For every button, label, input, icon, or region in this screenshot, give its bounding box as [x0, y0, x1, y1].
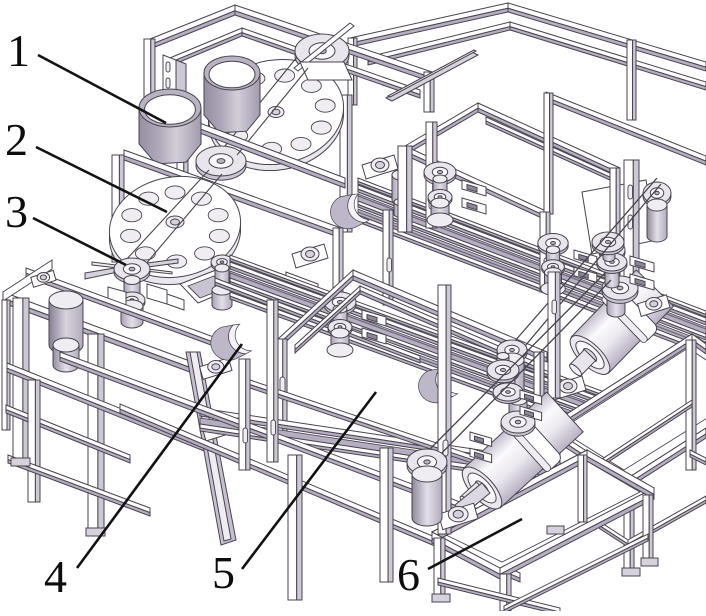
svg-text:1: 1	[7, 25, 30, 76]
svg-text:4: 4	[44, 551, 67, 602]
svg-text:3: 3	[5, 186, 28, 237]
svg-text:5: 5	[212, 547, 235, 598]
svg-text:2: 2	[5, 114, 28, 165]
svg-text:6: 6	[397, 549, 420, 600]
